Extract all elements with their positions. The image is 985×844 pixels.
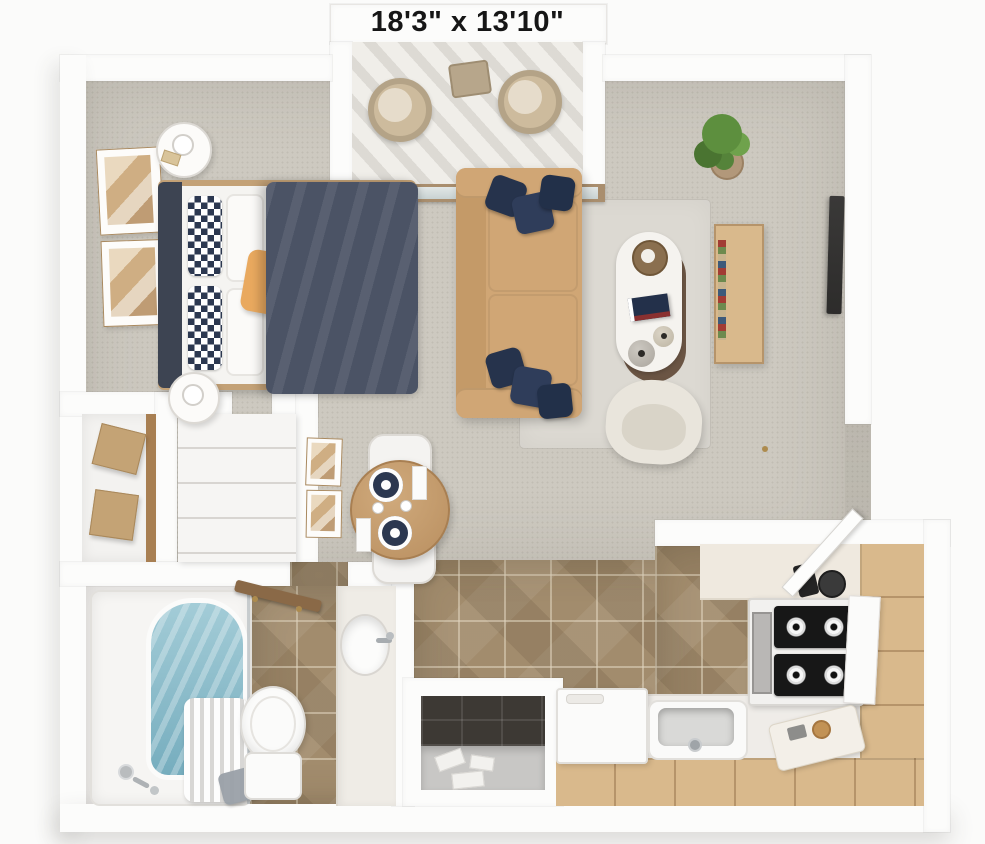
bathroom-door-threshold <box>290 562 348 588</box>
entry-door-knob <box>762 446 768 452</box>
bath-faucet <box>120 766 132 778</box>
refrigerator-handle <box>566 694 604 704</box>
napkin-2 <box>356 518 371 552</box>
wall-right-upper <box>845 55 871 424</box>
wall-kitchen-right <box>924 520 950 832</box>
floorplan-scene: 18'3" x 13'10" <box>0 0 985 844</box>
toilet-tank <box>244 752 302 800</box>
dining-art-canvas-1 <box>310 443 335 480</box>
wall-bottom <box>60 804 950 832</box>
stove-open-door <box>843 595 881 705</box>
patterned-pillow-1 <box>188 196 222 276</box>
burner-grate-1 <box>774 606 856 648</box>
place-setting-plate-2 <box>378 516 412 550</box>
balcony-chair-left-cushion <box>378 88 412 122</box>
kitchen-cabinets-bottom <box>556 758 924 806</box>
place-setting-plate-1 <box>369 468 403 502</box>
bath-spout <box>150 786 159 795</box>
towel-hook-2 <box>296 606 302 612</box>
balcony-table <box>448 59 492 98</box>
patterned-pillow-2 <box>188 286 222 370</box>
alcove-back-tiles <box>421 696 545 746</box>
dimensions-label: 18'3" x 13'10" <box>330 2 605 42</box>
decor-vase-1-hole <box>638 350 645 357</box>
decor-vase-2-hole <box>661 333 667 339</box>
wall-kitchen-top <box>655 520 950 546</box>
kitchen-faucet <box>690 740 700 750</box>
sofa-pillow-6 <box>536 382 573 419</box>
balcony-chair-right-cushion <box>508 80 542 114</box>
oven-window <box>752 612 772 694</box>
coffee-maker-carafe <box>818 570 846 598</box>
sofa-back <box>456 176 486 410</box>
dining-cup-2 <box>400 500 412 512</box>
bed-duvet <box>266 182 418 394</box>
storage-box-2 <box>89 489 139 541</box>
alcove-box-3 <box>451 770 484 789</box>
bathroom-faucet-knob <box>386 632 394 640</box>
balcony-wall-left <box>330 42 352 188</box>
table-lamp-bottom <box>182 384 204 406</box>
wall-closet-divider <box>155 392 177 562</box>
dining-art-canvas-2 <box>311 495 336 531</box>
bathroom-sink <box>340 614 390 676</box>
tv <box>826 196 844 314</box>
wardrobe-sliding-doors <box>178 414 296 562</box>
wall-art-canvas-1 <box>104 155 153 225</box>
toilet-lid-line <box>250 696 296 752</box>
wall-top-left-segment <box>60 55 332 81</box>
napkin-1 <box>412 466 427 500</box>
entry-floor-patch <box>845 424 871 520</box>
sofa-pillow-3 <box>538 174 576 212</box>
console-book-spines <box>718 240 726 340</box>
balcony-wall-right <box>583 42 605 188</box>
wall-top-right-segment <box>603 55 870 81</box>
dining-cup-1 <box>372 502 384 514</box>
decor-cup <box>641 249 655 263</box>
closet-shelf-wood-edge <box>146 414 156 562</box>
potted-plant-foliage <box>702 114 742 154</box>
wall-bathroom-top-left <box>60 562 290 586</box>
wall-art-canvas-2 <box>109 247 157 317</box>
bed-headboard <box>158 182 182 388</box>
